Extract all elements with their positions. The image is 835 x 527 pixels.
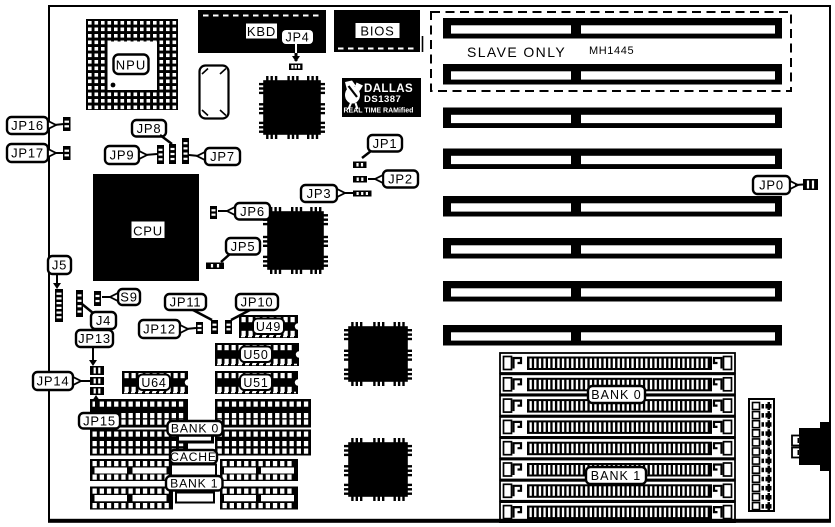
svg-text:JP13: JP13 bbox=[78, 331, 111, 346]
svg-text:JP17: JP17 bbox=[11, 146, 44, 161]
svg-text:SLAVE ONLY: SLAVE ONLY bbox=[467, 44, 566, 60]
svg-text:REAL TIME RAMified: REAL TIME RAMified bbox=[344, 108, 414, 115]
svg-text:JP7: JP7 bbox=[210, 149, 235, 164]
svg-text:J5: J5 bbox=[52, 258, 67, 273]
svg-text:JP11: JP11 bbox=[170, 295, 202, 310]
svg-text:JP9: JP9 bbox=[110, 148, 135, 163]
svg-text:BANK 0: BANK 0 bbox=[171, 422, 219, 436]
svg-text:BANK 1: BANK 1 bbox=[170, 477, 218, 491]
svg-text:J4: J4 bbox=[96, 313, 111, 328]
svg-text:JP2: JP2 bbox=[388, 172, 413, 187]
svg-text:JP10: JP10 bbox=[241, 295, 274, 310]
svg-text:JP12: JP12 bbox=[143, 322, 176, 337]
svg-text:JP3: JP3 bbox=[307, 186, 332, 201]
svg-text:JP6: JP6 bbox=[240, 204, 265, 219]
svg-text:JP15: JP15 bbox=[83, 413, 116, 428]
svg-text:KBD: KBD bbox=[247, 24, 276, 39]
svg-text:JP5: JP5 bbox=[231, 239, 256, 254]
svg-text:JP1: JP1 bbox=[373, 136, 398, 151]
svg-text:U50: U50 bbox=[243, 348, 268, 362]
svg-text:CPU: CPU bbox=[133, 224, 163, 239]
svg-text:MH1445: MH1445 bbox=[589, 45, 634, 57]
svg-text:JP8: JP8 bbox=[137, 121, 162, 136]
svg-text:U64: U64 bbox=[141, 376, 166, 390]
svg-text:JP14: JP14 bbox=[37, 374, 70, 389]
svg-text:U51: U51 bbox=[243, 376, 268, 390]
svg-text:JP4: JP4 bbox=[286, 31, 310, 45]
svg-text:JP0: JP0 bbox=[759, 178, 784, 193]
svg-text:BANK 0: BANK 0 bbox=[591, 388, 641, 402]
svg-text:U49: U49 bbox=[256, 320, 281, 334]
svg-text:BIOS: BIOS bbox=[360, 24, 394, 39]
svg-text:S9: S9 bbox=[120, 290, 138, 305]
svg-text:BANK 1: BANK 1 bbox=[591, 469, 641, 483]
svg-text:JP16: JP16 bbox=[11, 118, 44, 133]
svg-text:CACHE: CACHE bbox=[170, 450, 217, 464]
svg-text:NPU: NPU bbox=[116, 58, 146, 73]
svg-text:DS1387: DS1387 bbox=[364, 94, 401, 105]
